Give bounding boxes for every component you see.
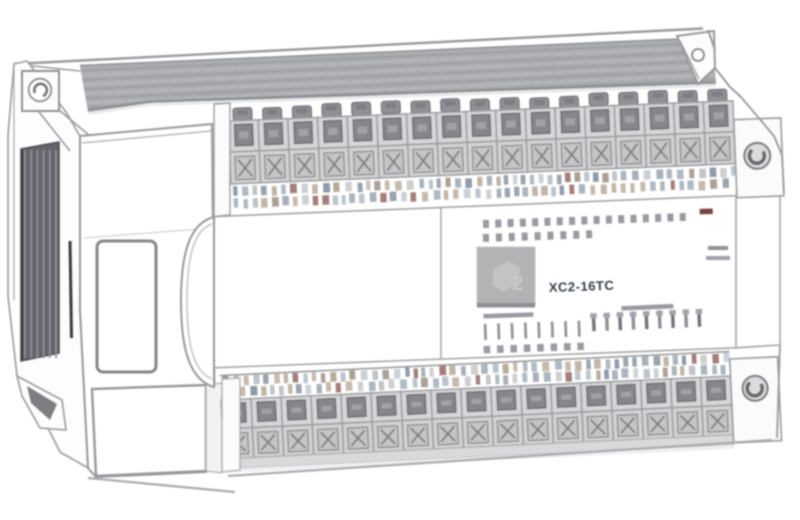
svg-text:2: 2 [512,273,523,295]
svg-text:XC2-16TC: XC2-16TC [549,278,615,295]
